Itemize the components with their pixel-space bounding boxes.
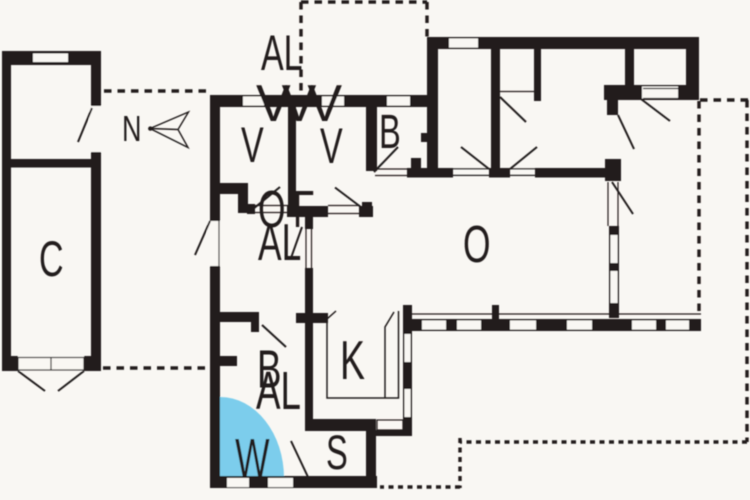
svg-text:AL: AL xyxy=(256,360,301,421)
svg-text:S: S xyxy=(326,426,348,480)
svg-text:AL: AL xyxy=(261,26,303,82)
svg-text:W: W xyxy=(235,427,270,488)
svg-text:K: K xyxy=(340,329,365,391)
svg-text:O: O xyxy=(463,216,490,273)
svg-text:AL: AL xyxy=(258,214,301,271)
svg-text:N: N xyxy=(122,108,141,149)
svg-text:V: V xyxy=(241,118,264,174)
svg-text:C: C xyxy=(39,232,64,288)
svg-text:V: V xyxy=(320,119,343,175)
svg-text:B: B xyxy=(379,105,401,159)
